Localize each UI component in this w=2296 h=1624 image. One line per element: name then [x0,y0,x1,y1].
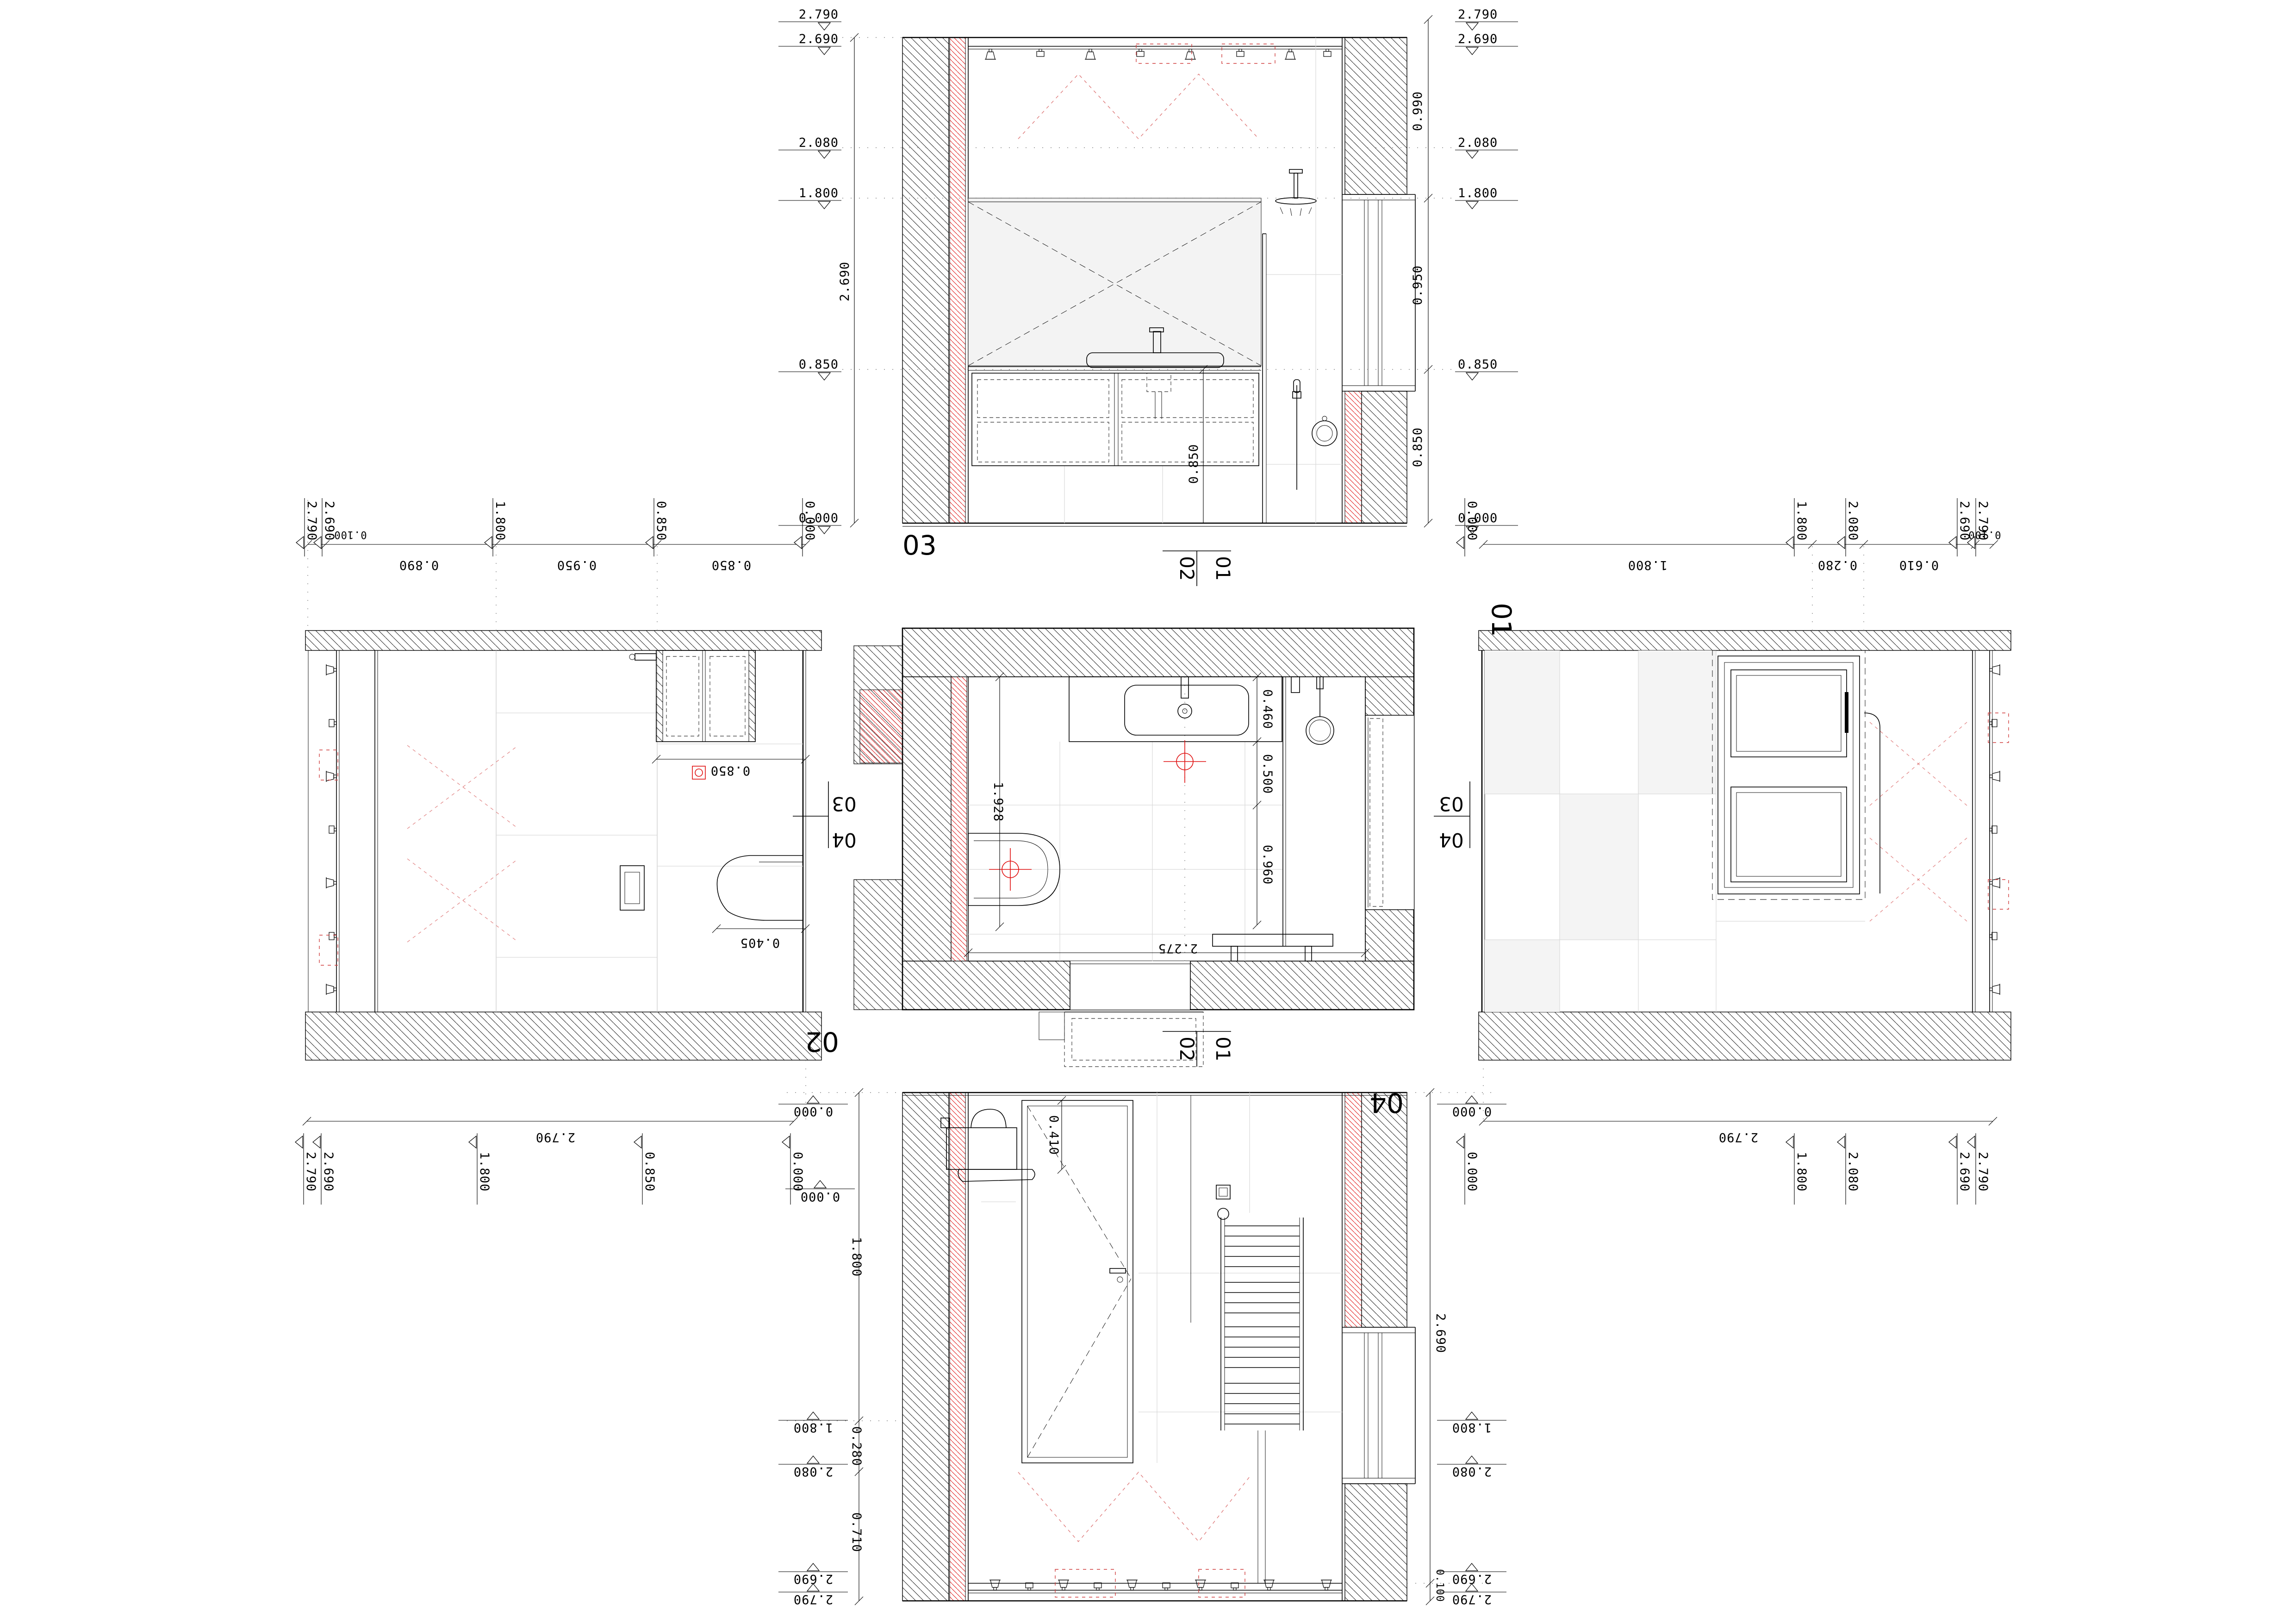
dim-label: 0.950 [1411,265,1425,305]
dim-label: 2.790 [535,1130,575,1144]
svg-text:02: 02 [1176,1037,1198,1061]
thermostat-control [1216,1185,1230,1219]
level-label: 2.790 [304,1152,318,1192]
dim-label: 0.460 [1260,689,1275,729]
dim-label: 0.405 [740,936,780,950]
level-label: 2.690 [1957,1152,1972,1192]
elevation-03-view: 0.850 2.690 0.990 0.950 0.850 03 02 01 [838,15,1453,586]
level-label: 2.690 [1458,32,1498,46]
adjacent-wall [854,880,902,1010]
level-marker: 1.800 [1437,1412,1506,1435]
window [1712,650,1880,899]
level-label: 2.690 [321,1152,336,1192]
dim-label: 0.850 [710,763,750,778]
svg-text:04: 04 [832,829,856,851]
dim-label: 0.890 [399,558,439,572]
elevation-01-view: 1.800 0.280 0.610 0.100 2.790 01 [1479,529,2011,1144]
dim-label: 0.100 [1434,1569,1445,1602]
door [1022,1100,1133,1463]
svg-text:0.000: 0.000 [800,1189,840,1204]
level-marker: 1.800 [1786,1133,1809,1205]
ceiling-light-track [968,44,1342,63]
ceiling-light-track [308,650,378,1012]
level-label: 2.080 [1846,501,1860,541]
level-marker: 1.800 [778,186,841,209]
floor-plan-view: 0.460 0.500 0.960 1.928 2.275 03 04 03 0… [793,628,1470,1067]
view-label: 01 [1486,603,1517,637]
section-marker-04-03-left: 03 04 [793,781,857,851]
wall-section-hatch [902,37,949,523]
level-label: 2.790 [793,1592,833,1606]
hand-shower-set [1293,380,1337,490]
light-cone-marking [1018,1472,1250,1542]
dim-label: 0.610 [1899,558,1939,572]
level-label: 2.790 [799,7,839,22]
level-label: 2.080 [793,1464,833,1479]
dim-label: 1.800 [849,1237,864,1277]
dim-label: 0.280 [1817,558,1857,572]
rain-shower-head [1276,169,1316,216]
dim-label: 0.100 [334,529,367,540]
level-marker: 0.850 [634,1133,657,1205]
dim-label: 0.850 [1187,444,1201,484]
level-marker: 2.690 [778,32,841,55]
power-outlet-icon [692,766,705,779]
cad-canvas: 0.850 2.690 0.990 0.950 0.850 03 02 01 [0,0,2296,1624]
dim-label: 1.928 [991,782,1005,822]
siphon [1147,373,1171,392]
insulation-hatch [951,677,967,961]
level-label: 2.790 [1452,1592,1492,1606]
level-label: 1.800 [1794,1152,1809,1192]
level-label: 1.800 [799,186,839,200]
level-marker: 2.790 [295,1133,318,1205]
level-marker: 2.690 [1455,32,1518,55]
drawing-sheet: 0.850 2.690 0.990 0.950 0.850 03 02 01 [0,0,2296,1624]
svg-text:02: 02 [1176,556,1198,581]
vanity-cabinet [972,373,1259,466]
light-cone-marking [1018,74,1259,139]
view-label: 04 [1369,1087,1404,1118]
level-marker: 0.000 [778,1096,848,1118]
level-marker: 2.790 [778,7,841,30]
level-marker: 1.800 [1786,498,1809,556]
level-marker: 2.790 [296,498,319,556]
svg-text:01: 01 [1212,556,1234,581]
level-label: 0.000 [790,1152,805,1192]
elevation-04-view: 0.410 1.800 0.280 0.710 2.690 0.100 04 [787,1087,1495,1605]
dim-label: 0.850 [1411,427,1425,467]
wall-west [902,677,951,961]
level-marker: 2.080 [1837,498,1860,556]
level-label: 0.850 [1458,357,1498,372]
dim-label: 0.960 [1260,845,1275,885]
level-label: 0.850 [642,1152,657,1192]
window-sash-2 [1731,787,1847,882]
window-plan [1365,715,1414,910]
level-label: 0.000 [1465,501,1479,541]
level-label: 2.690 [1957,501,1972,541]
view-label: 02 [805,1026,839,1057]
level-label: 1.800 [1458,186,1498,200]
level-marker: 2.690 [1437,1563,1506,1586]
wall-niche-shelf [1342,194,1415,391]
level-label: 2.790 [1976,501,1990,541]
insulation-hatch [950,37,965,523]
level-marker: 2.080 [778,136,841,158]
level-marker: 0.850 [1455,357,1518,380]
level-label: 1.800 [1452,1420,1492,1435]
view-label: 03 [902,530,937,561]
svg-text:03: 03 [832,793,856,815]
window-handle [1845,692,1848,733]
vanity-cabinet-section [629,650,755,742]
level-marker: 0.850 [778,357,841,380]
dim-label: 0.410 [1046,1115,1061,1155]
level-marker: 0.000 [1437,1096,1506,1118]
level-marker: 1.800 [485,498,507,556]
level-marker: 0.850 [646,498,668,556]
level-marker: 0.000 [1456,1133,1479,1205]
level-label: 2.080 [1452,1464,1492,1479]
window-sash-1 [1731,670,1847,757]
section-marker-02-01-bottom: 02 01 [1163,1031,1234,1067]
level-marker: 1.800 [469,1133,492,1205]
svg-text:01: 01 [1212,1037,1234,1061]
dim-label: 2.690 [1433,1313,1448,1353]
level-label: 2.080 [799,136,839,150]
level-marker: 2.790 [1455,7,1518,30]
section-marker-02-01: 02 01 [1163,551,1234,586]
level-label: 1.800 [493,501,507,541]
svg-text:03: 03 [1439,793,1463,815]
faucet-section [635,654,656,660]
level-marker: 2.790 [778,1584,848,1606]
pipe [1864,713,1880,893]
level-marker: 0.000 [1456,498,1479,556]
level-label: 2.690 [799,32,839,46]
level-marker: 2.080 [778,1456,848,1479]
level-marker: 2.690 [1949,498,1972,556]
level-marker: 2.790 [1437,1584,1506,1606]
dim-label: 2.690 [838,262,852,301]
wall-north [902,628,1414,677]
level-marker: 2.690 [778,1563,848,1586]
dim-label: 2.275 [1158,941,1198,956]
level-marker: 2.080 [1437,1456,1506,1479]
towel-radiator [1221,1218,1303,1583]
level-label: 0.000 [1465,1152,1479,1192]
dim-label: 0.500 [1260,754,1275,794]
level-label: 2.080 [1458,136,1498,150]
level-marker: 1.800 [778,1412,848,1435]
level-marker: 1.800 [1455,186,1518,209]
level-label: 0.000 [793,1104,833,1118]
level-label: 0.000 [1452,1104,1492,1118]
dim-label: 0.280 [849,1426,864,1466]
dim-label: 0.990 [1411,91,1425,131]
level-marker: 2.080 [1837,1133,1860,1205]
level-marker: 0.000 [1455,511,1518,534]
svg-text:04: 04 [1439,829,1463,851]
dim-label: 1.800 [1628,558,1668,572]
level-label: 1.800 [793,1420,833,1435]
level-marker: 2.690 [1949,1133,1972,1205]
dim-label: 2.790 [1718,1130,1758,1144]
dim-label: 0.710 [849,1512,864,1552]
wall-niche-shelf [1342,1327,1415,1484]
dim-label: 0.950 [557,558,597,572]
level-label: 2.790 [1458,7,1498,22]
level-label: 0.000 [803,501,817,541]
door-handle [1110,1268,1126,1273]
level-label: 2.690 [322,501,336,541]
dim-label: 0.850 [711,558,751,572]
level-marker: 0.000 [794,498,817,556]
level-label: 0.850 [799,357,839,372]
section-marker-04-03-right: 03 04 [1434,781,1470,851]
level-label: 2.790 [1976,1152,1990,1192]
level-label: 1.800 [477,1152,492,1192]
ceiling-light-track [1972,650,2009,1012]
level-label: 0.850 [654,501,668,541]
level-marker: 2.080 [1455,136,1518,158]
level-label: 2.790 [305,501,319,541]
mirror [968,198,1261,366]
elevation-02-view: 0.850 0.405 0.100 0.890 0.950 0.850 2.79… [303,500,839,1144]
level-label: 1.800 [1794,501,1809,541]
wc-toilet-section [717,856,803,920]
level-label: 2.080 [1846,1152,1860,1192]
